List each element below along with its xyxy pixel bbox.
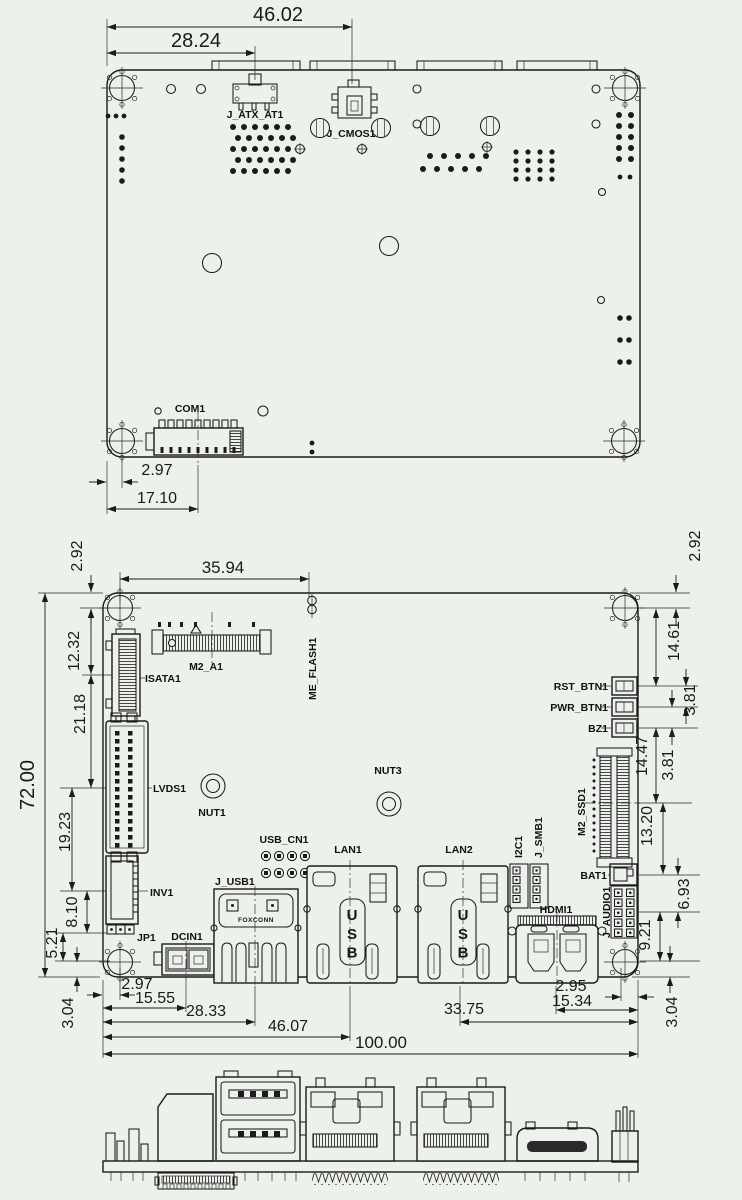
label-nut1: NUT1 [198,807,226,819]
lan1-connector [304,866,400,983]
label-lan1: LAN1 [334,844,362,856]
hdmi1-connector [508,912,606,985]
dim-lvds-to-inv: 19.23 [57,812,74,852]
dim-hole-to-meflash: 35.94 [202,558,245,577]
label-dcin1: DCIN1 [171,931,203,943]
label-j-atx-at1: J_ATX_AT1 [227,109,284,121]
dim-right-hole-to-edge: 3.04 [664,996,681,1027]
label-usb-cn1: USB_CN1 [259,834,308,846]
foxconn-marking: FOXCONN [238,917,274,924]
label-lan2: LAN2 [445,844,473,856]
dim-hole-to-isata: 12.32 [66,631,83,671]
label-pwr-btn1: PWR_BTN1 [550,702,608,714]
dim-audio-to-hole: 9.21 [637,919,654,950]
background [0,0,742,1200]
label-com1: COM1 [175,403,205,415]
label-jp1: JP1 [137,932,156,944]
usb-marking-lan2: USB [458,907,469,962]
label-j-cmos1: J_CMOS1 [326,128,375,140]
dim-rst-to-pwr: 3.81 [682,684,699,715]
dim-lan2-to-edge: 33.75 [444,1001,484,1018]
dim-com1-center: 17.10 [137,490,177,507]
dim-dcin-center: 15.55 [135,990,175,1007]
dim-inv-to-jp: 8.10 [64,896,81,927]
dim-left-hole-to-edge: 3.04 [60,997,77,1028]
dim-cmos-from-edge: 46.02 [253,4,303,26]
dim-bz-to-ssd: 14.47 [634,736,651,776]
j-usb1-connector [211,886,301,985]
label-i2c1: I2C1 [513,836,525,858]
label-nut3: NUT3 [374,765,402,777]
label-j-usb1: J_USB1 [215,876,255,888]
label-m2-ssd1: M2_SSD1 [576,788,588,836]
label-isata1: ISATA1 [145,673,181,685]
dim-pwr-to-bz: 3.81 [660,749,677,780]
dim-right-edge-to-hole: 2.92 [687,530,704,561]
dim-lan1-center: 46.07 [268,1018,308,1035]
dim-com1-edge-offset: 2.97 [141,462,172,479]
label-lvds1: LVDS1 [153,783,186,795]
label-bat1: BAT1 [580,870,607,882]
label-j-smb1: J_SMB1 [533,817,545,858]
drawing-canvas: 46.02 28.24 2.97 17.10 J_ATX_AT1 J_CMOS1… [0,0,742,1200]
label-hdmi1: HDMI1 [540,904,573,916]
dim-ssd-to-bat: 13.20 [639,806,656,846]
dim-isata-to-lvds: 21.18 [72,694,89,734]
dim-left-edge-to-hole: 2.92 [69,540,86,571]
dim-jp-to-hole: 5.21 [44,927,61,958]
label-m2-a1: M2_A1 [189,661,223,673]
pcb-dimension-drawing: 46.02 28.24 2.97 17.10 J_ATX_AT1 J_CMOS1… [0,0,742,1200]
usb-marking-lan1: USB [347,907,358,962]
dim-hole-to-rst: 14.61 [666,621,683,661]
dim-bat-to-audio: 6.93 [676,878,693,909]
label-j-audio1: J_AUDIO1 [601,886,613,938]
dim-usb-center: 28.33 [186,1003,226,1020]
dim-atx-from-edge: 28.24 [171,30,221,52]
label-rst-btn1: RST_BTN1 [554,681,608,693]
label-bz1: BZ1 [588,723,608,735]
label-me-flash1: ME_FLASH1 [307,637,319,700]
dim-board-height: 72.00 [17,760,39,810]
dim-board-width: 100.00 [355,1033,407,1052]
dim-hdmi-to-edge: 15.34 [552,993,592,1010]
label-inv1: INV1 [150,887,174,899]
